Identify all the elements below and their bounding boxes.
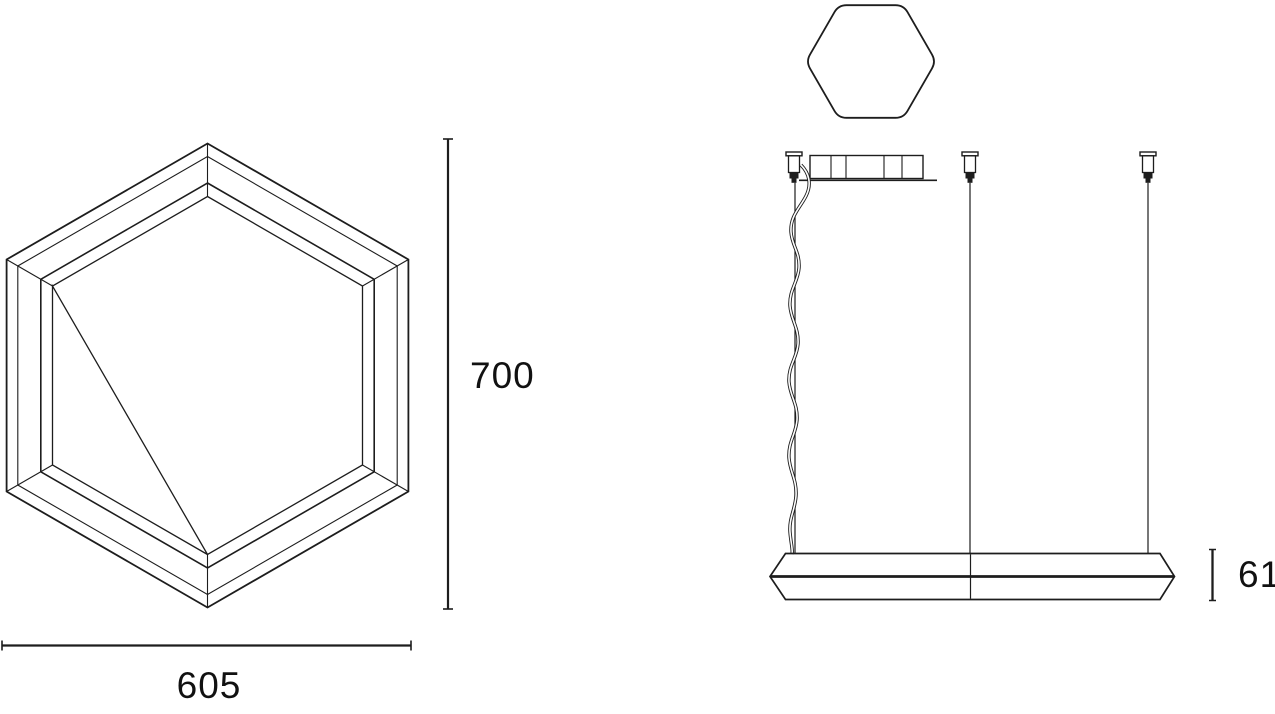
power-cord bbox=[789, 165, 809, 554]
hexagon-bevel-edge bbox=[41, 183, 374, 568]
width-dimension-label: 605 bbox=[177, 665, 242, 706]
dimension-drawing-canvas: 700 605 bbox=[0, 0, 1275, 714]
gripper-nut bbox=[790, 173, 799, 179]
gripper-nub bbox=[1146, 179, 1151, 183]
gripper-nut bbox=[1144, 173, 1153, 179]
power-cord-core bbox=[789, 165, 809, 554]
hexagon-outer-edge bbox=[7, 144, 409, 608]
fixture-profile bbox=[770, 554, 1175, 600]
cable-gripper-left bbox=[786, 152, 802, 183]
driver-box-dividers bbox=[831, 156, 902, 179]
gripper-nub bbox=[968, 179, 973, 183]
corner-joint-upper-right bbox=[363, 260, 409, 287]
height-dimension-label: 700 bbox=[470, 355, 535, 396]
hexagon-top-face-edge bbox=[18, 157, 397, 595]
cable-gripper-right bbox=[1140, 152, 1156, 183]
dimension-drawing: 700 605 bbox=[0, 0, 1275, 714]
gripper-nut bbox=[966, 173, 975, 179]
top-view-hexagon bbox=[808, 5, 934, 118]
hexagon-corner-joints bbox=[7, 144, 409, 608]
gripper-body bbox=[1143, 156, 1154, 173]
hexagon-inner-opening-edge bbox=[53, 197, 363, 555]
gripper-body bbox=[789, 156, 800, 173]
ceiling-kit bbox=[786, 152, 1156, 183]
profile-height-dimension: 61 bbox=[1209, 550, 1275, 601]
front-view-hexagon-frame bbox=[7, 144, 409, 608]
suspension-cables bbox=[795, 183, 1148, 554]
height-dimension: 700 bbox=[443, 139, 535, 609]
drawing-root: 700 605 bbox=[2, 5, 1275, 706]
corner-joint-lower-left bbox=[7, 465, 53, 492]
side-view: 61 bbox=[770, 5, 1275, 600]
corner-joint-upper-left bbox=[7, 260, 53, 287]
corner-joint-lower-right bbox=[363, 465, 409, 492]
width-dimension: 605 bbox=[2, 641, 411, 707]
driver-box bbox=[810, 156, 923, 179]
gripper-body bbox=[965, 156, 976, 173]
cable-gripper-middle bbox=[962, 152, 978, 183]
gripper-nub bbox=[792, 179, 797, 183]
profile-height-dimension-label: 61 bbox=[1238, 554, 1275, 595]
